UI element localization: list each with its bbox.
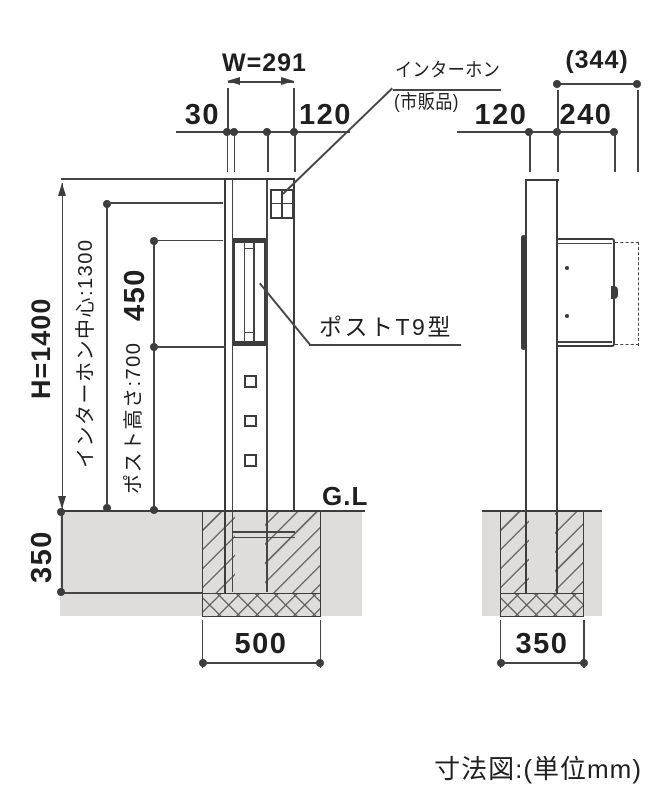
dim-total-depth-label: (344) xyxy=(553,47,641,73)
post-top-edge-side xyxy=(525,179,559,181)
extension-line xyxy=(227,133,229,172)
dim-intercom-center-label: インターホン中心:1300 xyxy=(76,238,96,468)
post-right-edge-front xyxy=(293,178,295,512)
foundation-bottom-level-line xyxy=(61,592,202,594)
post-ornament-square xyxy=(244,415,257,428)
leader-underline-post xyxy=(309,344,461,346)
anchor-plate-line xyxy=(233,531,295,533)
post-embed-gap-front xyxy=(235,512,265,593)
dim-arrow-left xyxy=(227,77,240,85)
mailbox-body-side xyxy=(556,238,615,347)
mailbox-swing-dashed-bottom xyxy=(615,344,639,345)
dim-width-label: W=291 xyxy=(222,50,298,76)
dim-line-height xyxy=(62,183,64,509)
mailbox-inner-bottom-line xyxy=(558,341,612,343)
dim-dot xyxy=(316,659,324,667)
gravel-band-side xyxy=(500,593,584,617)
dim-offset-left: 30 xyxy=(158,100,220,130)
dim-arrow-right xyxy=(281,77,294,85)
mailbox-swing-dashed-top xyxy=(615,242,639,243)
mailbox-latch xyxy=(611,286,619,299)
dimension-drawing: G.L W=291 30 120 (344) 120 240 インターホン (市… xyxy=(0,0,666,812)
dim-post-height-label: ポスト高さ:700 xyxy=(124,342,144,494)
dim-embed-depth-label: 350 xyxy=(28,530,57,583)
post-model-label: ポストT9型 xyxy=(319,315,453,339)
intercom-divider-h xyxy=(272,203,292,205)
post-ornament-square xyxy=(244,375,257,388)
dim-dot xyxy=(633,80,641,88)
dim-dot xyxy=(103,504,111,512)
dim-dot xyxy=(497,659,505,667)
dim-height-label: H=1400 xyxy=(28,298,55,399)
dim-depth-240: 240 xyxy=(558,100,614,130)
dim-line-embed-depth xyxy=(61,511,63,593)
extension-line xyxy=(293,88,295,132)
mailbox-bottom-level-line xyxy=(153,346,226,348)
front-panel-plate-side xyxy=(521,235,526,350)
dim-line-foundation-side xyxy=(500,662,584,664)
extension-line xyxy=(637,90,639,172)
mailbox-inner-top-line xyxy=(558,243,612,245)
post-embed-gap-side xyxy=(529,512,555,593)
dim-dot xyxy=(553,80,561,88)
extension-line xyxy=(234,133,236,172)
dim-arrow-up xyxy=(58,183,66,196)
mailbox-top-band xyxy=(233,238,266,243)
mailbox-swing-dashed-right xyxy=(638,242,639,346)
mailbox-screw-dot xyxy=(565,266,569,270)
mailbox-top-level-line xyxy=(153,240,223,242)
intercom-callout-label: インターホン xyxy=(395,61,500,81)
intercom-center-level-line xyxy=(106,202,223,204)
post-ornament-square xyxy=(244,454,257,467)
extension-line xyxy=(614,133,616,172)
extension-line xyxy=(294,133,296,172)
dim-foundation-width-side: 350 xyxy=(507,629,577,659)
post-top-edge-front xyxy=(224,178,295,180)
top-level-line xyxy=(61,178,224,180)
dim-line-intercom-center xyxy=(106,203,108,509)
mailbox-front xyxy=(233,238,266,346)
mailbox-bottom-band xyxy=(233,341,266,346)
dim-line-344 xyxy=(557,83,637,85)
mailbox-slot-cap-top xyxy=(244,248,256,250)
ground-line-side xyxy=(482,510,602,512)
mailbox-slot-cap-bottom xyxy=(244,332,256,334)
intercom-callout-note: (市販品) xyxy=(394,93,459,113)
leader-underline-intercom xyxy=(393,89,501,91)
dim-line-foundation-front xyxy=(202,662,321,664)
ground-level-label: G.L xyxy=(322,483,368,510)
drawing-caption: 寸法図:(単位mm) xyxy=(390,756,642,783)
dim-450-label: 450 xyxy=(121,268,150,321)
dim-dot xyxy=(580,659,588,667)
extension-line xyxy=(529,133,531,172)
dim-foundation-width-front: 500 xyxy=(226,629,296,659)
anchor-plate-line xyxy=(233,537,295,539)
dim-dot xyxy=(103,200,111,208)
post-left-edge-front xyxy=(224,178,226,593)
dim-offset-front-side: 120 xyxy=(473,100,529,130)
dim-offset-right: 120 xyxy=(299,100,352,130)
mailbox-slot-left xyxy=(244,243,246,341)
gravel-band-front xyxy=(202,593,321,617)
mailbox-slot-right xyxy=(253,243,255,341)
dim-dot xyxy=(199,659,207,667)
dim-line-450-700 xyxy=(153,240,155,511)
mailbox-screw-dot xyxy=(565,314,569,318)
extension-line xyxy=(267,133,269,172)
dim-baseline-side xyxy=(457,131,615,133)
extension-line xyxy=(227,88,229,132)
dim-arrow-down xyxy=(58,496,66,509)
dim-dot xyxy=(150,506,158,514)
